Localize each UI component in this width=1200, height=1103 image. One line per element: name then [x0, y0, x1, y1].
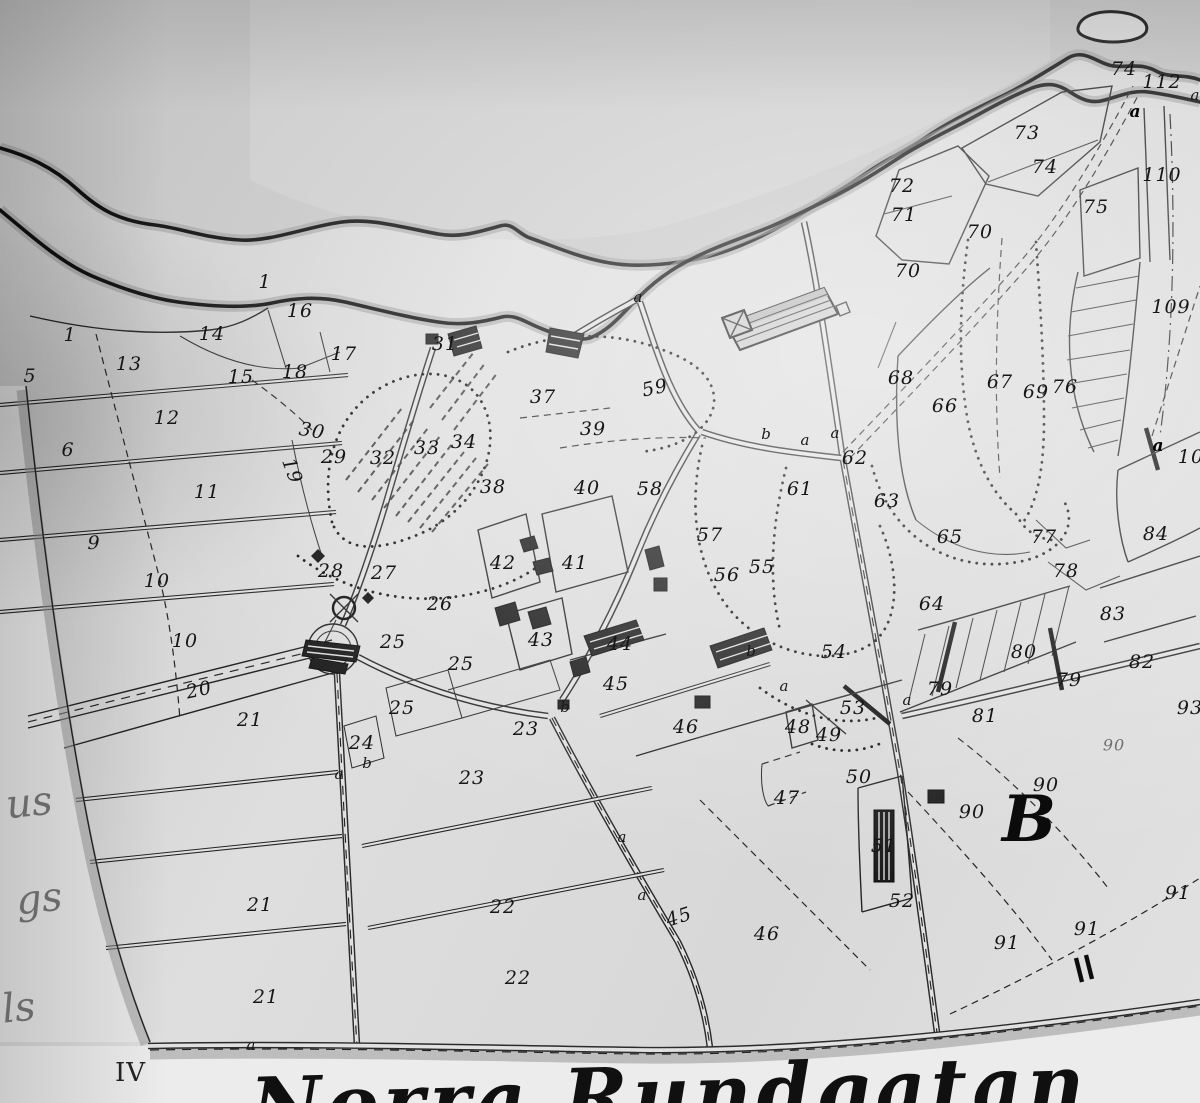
- sheet-numeral: IV: [115, 1058, 146, 1088]
- edge-text-fragment: us: [4, 778, 55, 829]
- edge-fragments-layer: usgsls: [0, 0, 1200, 1103]
- edge-text-fragment: ls: [0, 983, 38, 1032]
- edge-text-fragment: gs: [14, 874, 65, 925]
- map-photo: 1156910101112131415161718193029282726252…: [0, 0, 1200, 1103]
- block-letter-b: B: [1002, 782, 1056, 857]
